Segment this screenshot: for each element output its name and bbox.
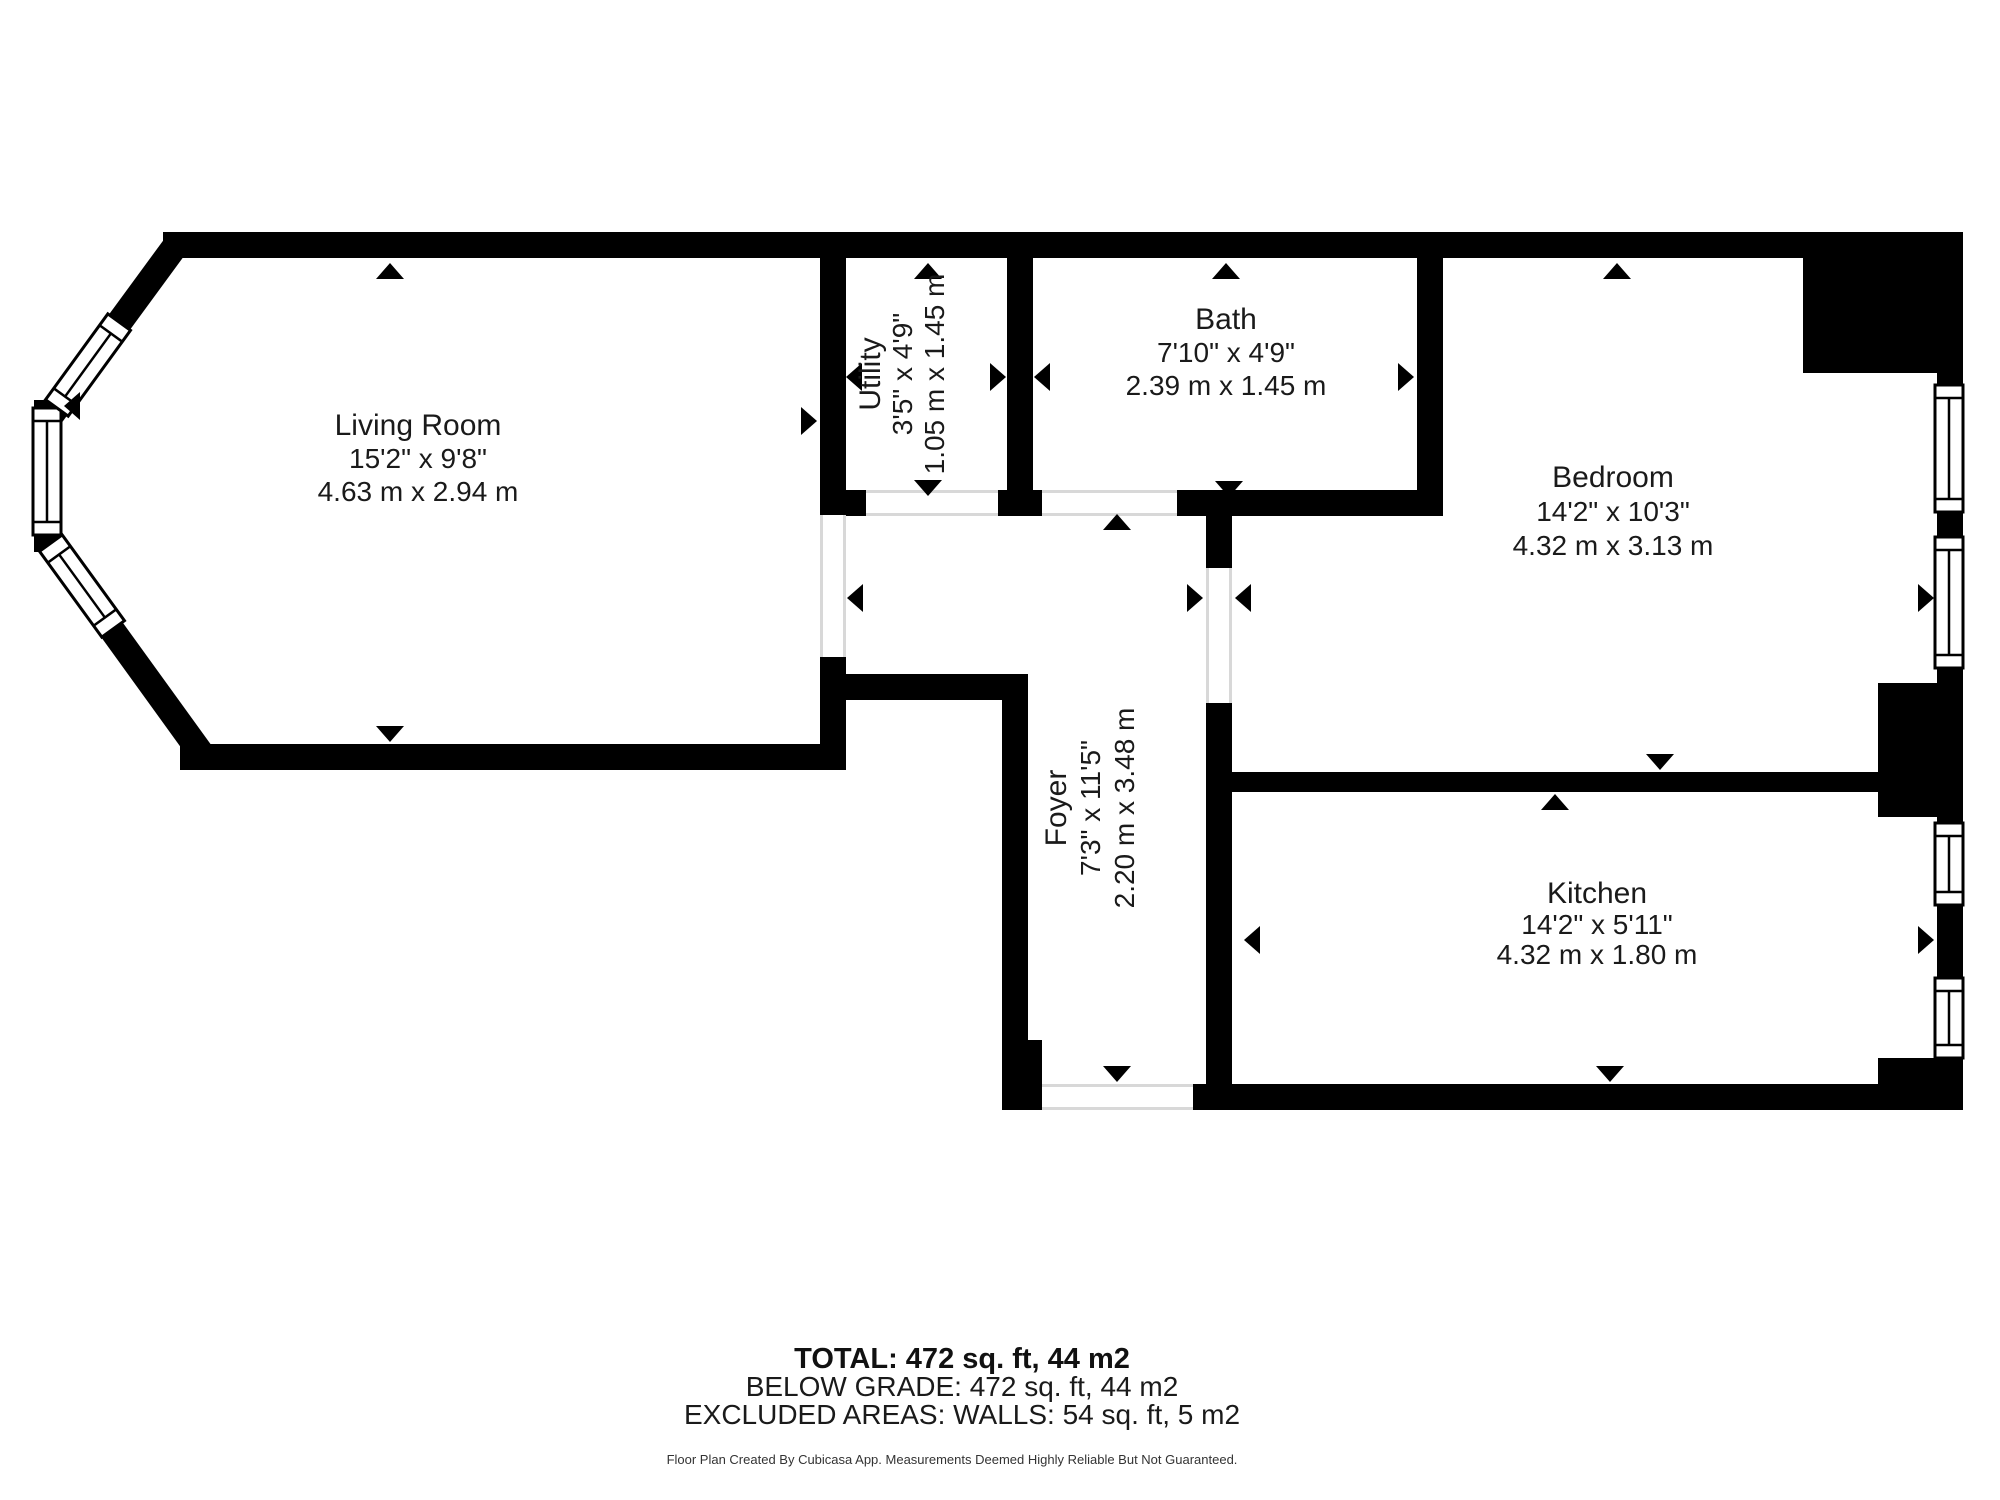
measure-arrow (1603, 263, 1631, 279)
wall-segment (1878, 683, 1963, 817)
wall-segment (1002, 687, 1028, 1084)
window-bedroom-2 (1935, 537, 1963, 668)
measure-arrow (1187, 584, 1203, 612)
room-dims-m: 4.32 m x 3.13 m (1513, 530, 1714, 561)
wall-segment (820, 490, 866, 516)
wall-segment (180, 744, 846, 770)
measure-arrow (801, 407, 817, 435)
measure-arrow (847, 584, 863, 612)
window-bay-lower (40, 535, 125, 637)
measure-arrow (376, 263, 404, 279)
room-dims-ft: 7'10" x 4'9" (1157, 337, 1295, 368)
room-dims-m: 2.20 m x 3.48 m (1109, 708, 1140, 909)
wall-segment (1417, 258, 1443, 516)
room-name: Kitchen (1547, 877, 1647, 910)
room-label-bedroom: Bedroom 14'2" x 10'3" 4.32 m x 3.13 m (1513, 461, 1714, 561)
room-dims-ft: 14'2" x 5'11" (1521, 909, 1672, 940)
window-kitchen-1 (1935, 823, 1963, 905)
measure-arrow (1541, 794, 1569, 810)
door-opening-living-room (820, 515, 846, 657)
window-bay-upper (46, 314, 131, 416)
wall-segment (1193, 1084, 1963, 1110)
measure-arrow (1244, 926, 1260, 954)
door-opening-bath (1042, 490, 1177, 516)
wall-segment (163, 232, 1963, 258)
room-dims-ft: 3'5" x 4'9" (887, 313, 918, 435)
door-opening-entrance (1042, 1084, 1193, 1110)
wall-segment (1803, 258, 1963, 373)
measure-arrow (1596, 1066, 1624, 1082)
wall-segment (1219, 772, 1878, 792)
floor-plan: Living Room 15'2" x 9'8" 4.63 m x 2.94 m… (0, 0, 2000, 1500)
room-name: Foyer (1040, 770, 1073, 847)
wall-segment (1177, 490, 1443, 516)
wall-segment (1007, 258, 1033, 516)
window-bay-center (33, 408, 61, 535)
room-name: Living Room (335, 409, 502, 442)
area-summary: TOTAL: 472 sq. ft, 44 m2 BELOW GRADE: 47… (684, 1343, 1240, 1430)
room-dims-ft: 7'3" x 11'5" (1075, 740, 1106, 876)
room-name: Bedroom (1552, 461, 1674, 494)
room-label-utility: Utility 3'5" x 4'9" 1.05 m x 1.45 m (854, 274, 950, 475)
window-bedroom-1 (1935, 385, 1963, 512)
room-dims-m: 1.05 m x 1.45 m (919, 274, 950, 475)
room-label-foyer: Foyer 7'3" x 11'5" 2.20 m x 3.48 m (1040, 708, 1140, 909)
room-name: Bath (1195, 303, 1257, 336)
measure-arrow (990, 363, 1006, 391)
measure-arrow (1235, 584, 1251, 612)
room-dims-m: 4.32 m x 1.80 m (1497, 939, 1698, 970)
measure-arrow (1034, 363, 1050, 391)
door-opening-bedroom (1206, 568, 1232, 703)
room-dims-m: 4.63 m x 2.94 m (318, 476, 519, 507)
room-dims-m: 2.39 m x 1.45 m (1126, 370, 1327, 401)
room-label-bath: Bath 7'10" x 4'9" 2.39 m x 1.45 m (1126, 303, 1327, 401)
wall-segment (1206, 703, 1232, 1110)
measure-arrow (1212, 263, 1240, 279)
measure-arrow (1398, 363, 1414, 391)
measure-arrow (1103, 514, 1131, 530)
walls (47, 232, 1963, 1110)
door-opening-utility (866, 490, 998, 516)
wall-segment (1002, 1040, 1042, 1110)
disclaimer-text: Floor Plan Created By Cubicasa App. Meas… (667, 1452, 1238, 1467)
measure-arrow (1103, 1066, 1131, 1082)
below-grade-text: BELOW GRADE: 472 sq. ft, 44 m2 (746, 1371, 1179, 1402)
window-kitchen-2 (1935, 978, 1963, 1058)
room-name: Utility (854, 337, 887, 410)
measure-arrow (376, 726, 404, 742)
wall-segment (820, 258, 846, 515)
room-label-kitchen: Kitchen 14'2" x 5'11" 4.32 m x 1.80 m (1497, 877, 1698, 970)
room-label-living-room: Living Room 15'2" x 9'8" 4.63 m x 2.94 m (318, 409, 519, 507)
measure-arrow (1918, 926, 1934, 954)
room-dims-ft: 15'2" x 9'8" (349, 443, 487, 474)
wall-segment (820, 674, 1028, 700)
excluded-areas-text: EXCLUDED AREAS: WALLS: 54 sq. ft, 5 m2 (684, 1399, 1240, 1430)
measure-arrow (1918, 584, 1934, 612)
room-dims-ft: 14'2" x 10'3" (1536, 496, 1690, 527)
measure-arrow (1646, 754, 1674, 770)
